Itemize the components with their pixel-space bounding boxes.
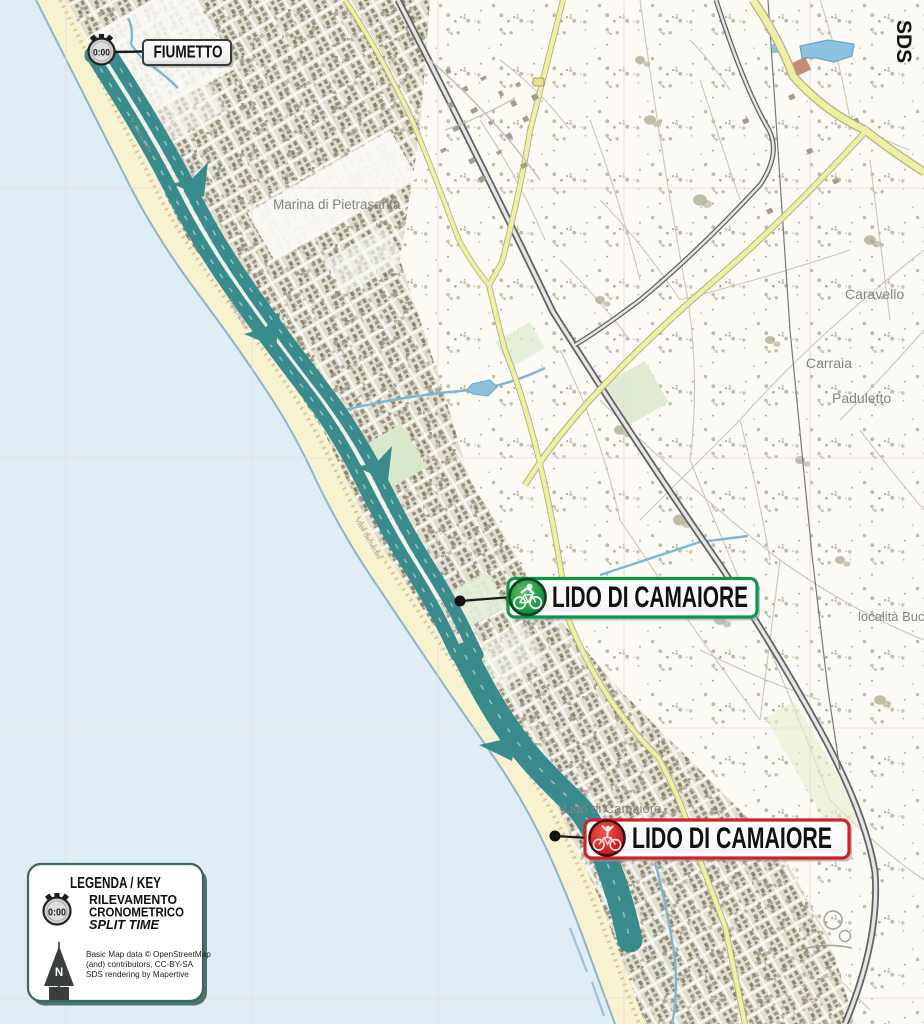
svg-text:LIDO DI CAMAIORE: LIDO DI CAMAIORE [632,822,832,855]
svg-text:Marina di Pietrasanta: Marina di Pietrasanta [273,197,401,212]
svg-text:località Bucine: località Bucine [858,609,924,624]
svg-text:Lido di Camaiore: Lido di Camaiore [563,801,661,816]
svg-text:SDS: SDS [892,20,915,63]
svg-text:LIDO DI CAMAIORE: LIDO DI CAMAIORE [552,581,748,614]
svg-text:LEGENDA / KEY: LEGENDA / KEY [70,875,161,892]
svg-text:0:00: 0:00 [93,47,110,58]
svg-text:N: N [55,967,63,979]
svg-text:(and) contributors, CC-BY-SA: (and) contributors, CC-BY-SA [86,960,194,969]
svg-text:0:00: 0:00 [48,907,66,918]
svg-text:Carraia: Carraia [806,355,852,371]
svg-text:Basic Map data © OpenStreetMap: Basic Map data © OpenStreetMap [86,950,211,959]
svg-text:SPLIT TIME: SPLIT TIME [89,917,159,932]
svg-text:FIUMETTO: FIUMETTO [154,42,223,62]
svg-text:SDS rendering by Mapertive: SDS rendering by Mapertive [86,970,189,979]
svg-text:Paduletto: Paduletto [832,390,891,406]
svg-text:Caravello: Caravello [845,286,904,302]
